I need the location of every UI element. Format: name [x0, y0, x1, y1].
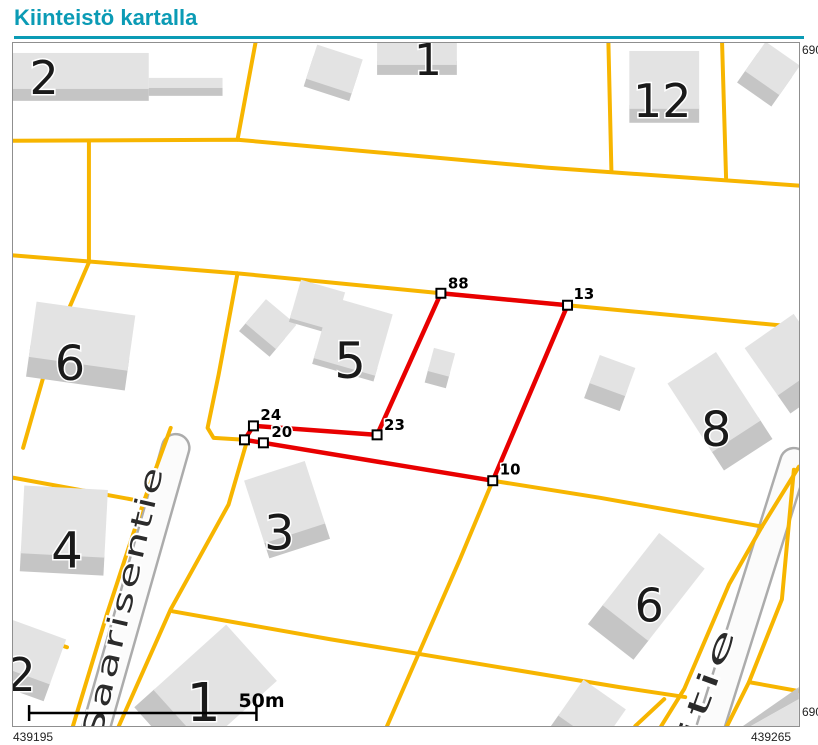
boundary-line: [387, 481, 493, 726]
parcel-point-marker: [436, 289, 445, 298]
boundary-line: [635, 699, 664, 726]
building-label: 3: [264, 507, 294, 562]
page-title: Kiinteistö kartalla: [14, 5, 197, 31]
parcel-point-label: 24: [260, 406, 281, 424]
parcel-point-marker: [488, 476, 497, 485]
building-label: 1: [186, 671, 220, 727]
building: [425, 348, 455, 388]
parcel-point-marker: [563, 301, 572, 310]
parcel-point-label: 23: [384, 416, 405, 434]
boundary-line: [608, 43, 611, 171]
building-label: 8: [701, 403, 731, 458]
boundary-line: [237, 43, 255, 140]
building-label: 2: [29, 51, 58, 105]
building-label: 4: [51, 521, 83, 579]
boundary-line: [493, 481, 762, 527]
building: [745, 314, 800, 414]
property-map-page: Kiinteistö kartalla: [0, 0, 818, 745]
parcel-point-label: 13: [574, 285, 595, 303]
building: [584, 355, 635, 411]
title-divider: [14, 36, 804, 39]
coordinate-right-bottom: 690: [802, 705, 818, 719]
coordinate-bottom-left: 439195: [13, 730, 53, 744]
parcel-point-marker: [240, 435, 249, 444]
boundary-line: [722, 43, 726, 178]
map-canvas: 2 1 12 6 5 8 4 3 6 2 1 88 13 10 23 24 20…: [12, 42, 800, 727]
building-label: 6: [635, 578, 664, 632]
building-label: 5: [334, 332, 366, 390]
building: [743, 687, 799, 726]
coordinate-top-right: 690: [802, 43, 818, 57]
scale-bar-label: 50m: [238, 690, 284, 712]
boundary-line: [13, 140, 799, 186]
boundary-line: [208, 273, 247, 440]
building: [239, 299, 296, 357]
building-label: 6: [55, 337, 85, 392]
parcel-point-label: 10: [500, 461, 521, 479]
parcel-boundary: [240, 289, 572, 485]
building: [304, 45, 363, 102]
parcel-point-marker: [259, 438, 268, 447]
building-label: 1: [414, 42, 442, 86]
parcel-point-marker: [373, 430, 382, 439]
building-label: 12: [633, 74, 691, 128]
parcel-point-label: 88: [448, 274, 469, 292]
parcel-point-label: 20: [271, 423, 292, 441]
building-label: 2: [12, 648, 36, 702]
coordinate-bottom-right: 439265: [751, 730, 791, 744]
parcel-point-marker: [249, 421, 258, 430]
building: [737, 42, 800, 107]
boundary-line: [749, 682, 799, 691]
